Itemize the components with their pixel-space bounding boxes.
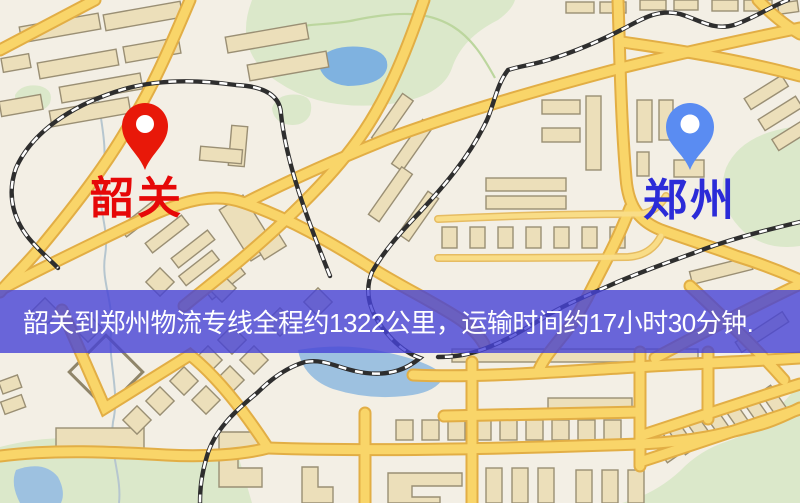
- destination-city-label: 郑州: [643, 179, 737, 223]
- origin-city-label: 韶关: [90, 177, 184, 221]
- map-image: [0, 0, 800, 503]
- map-screenshot: 韶关 郑州 韶关到郑州物流专线全程约1322公里，运输时间约17小时30分钟.: [0, 0, 800, 503]
- destination-pin-shape: [666, 103, 714, 170]
- origin-pin-icon: [122, 103, 168, 170]
- info-banner-text: 韶关到郑州物流专线全程约1322公里，运输时间约17小时30分钟.: [0, 303, 753, 340]
- info-banner: 韶关到郑州物流专线全程约1322公里，运输时间约17小时30分钟.: [0, 290, 800, 353]
- origin-pin-shape: [122, 103, 168, 170]
- destination-pin-icon: [666, 103, 714, 170]
